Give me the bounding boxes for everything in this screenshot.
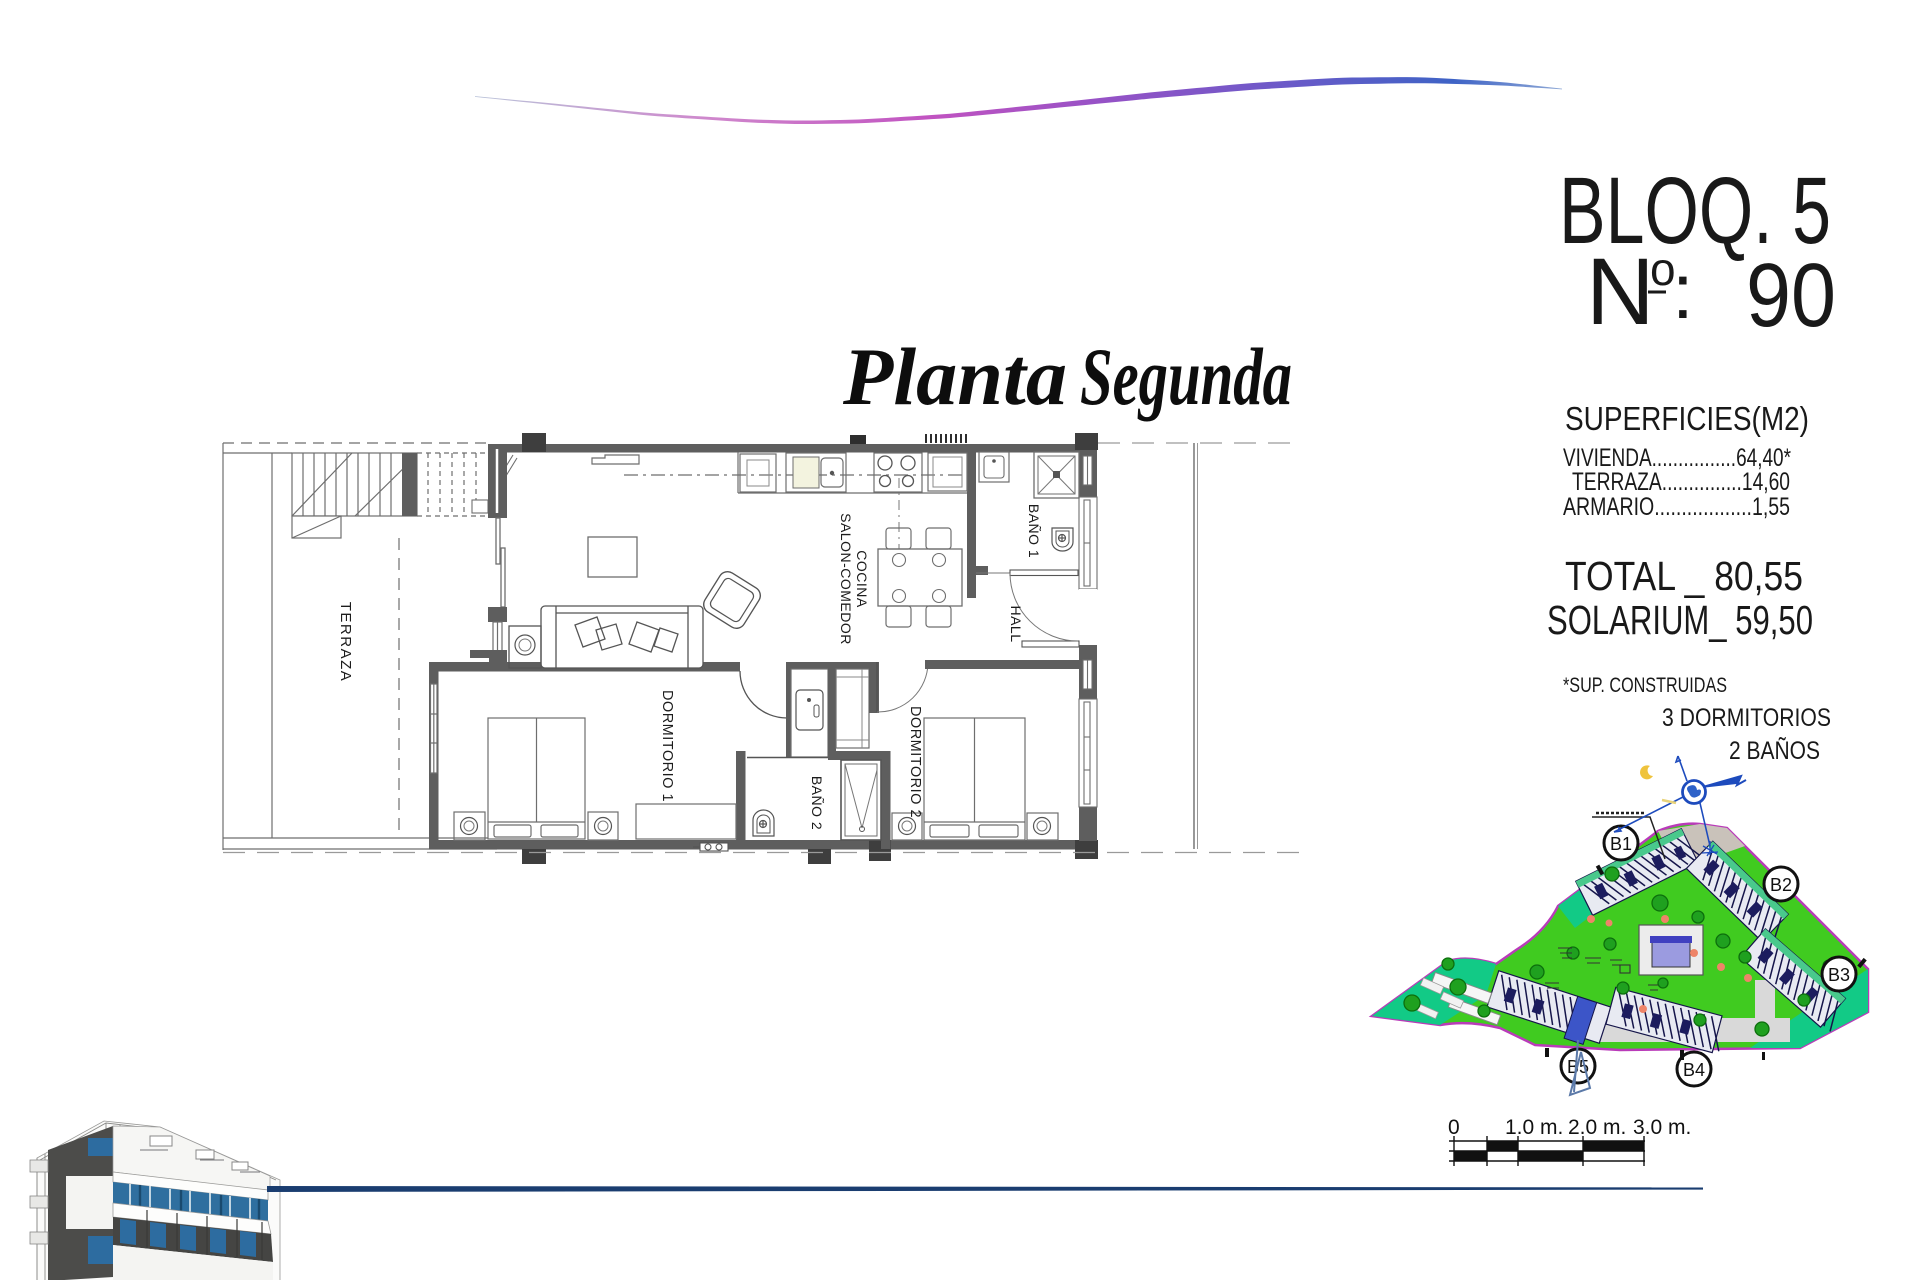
svg-text:B2: B2 — [1770, 875, 1792, 895]
svg-text:B3: B3 — [1828, 965, 1850, 985]
svg-text:SUPERFICIES(M2): SUPERFICIES(M2) — [1565, 400, 1809, 437]
svg-text:SOLARIUM_ 59,50: SOLARIUM_ 59,50 — [1547, 597, 1813, 643]
svg-text:0: 0 — [1448, 1116, 1460, 1139]
svg-text:B4: B4 — [1683, 1060, 1705, 1080]
svg-text:DORMITORIO 1: DORMITORIO 1 — [659, 690, 675, 802]
svg-text:BAÑO 1: BAÑO 1 — [1026, 504, 1042, 558]
svg-text:BAÑO 2: BAÑO 2 — [809, 776, 825, 830]
svg-text:N: N — [1586, 239, 1655, 345]
svg-text:TOTAL _ 80,55: TOTAL _ 80,55 — [1565, 553, 1803, 599]
svg-text:2.0 m.: 2.0 m. — [1568, 1116, 1626, 1139]
svg-text:1.0 m.: 1.0 m. — [1505, 1116, 1563, 1139]
svg-text:COCINA: COCINA — [854, 550, 870, 608]
svg-text:Planta: Planta — [842, 331, 1067, 422]
svg-text:SALON-COMEDOR: SALON-COMEDOR — [838, 513, 854, 645]
svg-text:2 BAÑOS: 2 BAÑOS — [1729, 736, 1820, 765]
svg-text:DORMITORIO 2: DORMITORIO 2 — [907, 706, 923, 818]
svg-text:ARMARIO..................1,55: ARMARIO..................1,55 — [1563, 493, 1790, 521]
svg-text:90: 90 — [1746, 246, 1836, 346]
svg-text:3.0 m.: 3.0 m. — [1633, 1116, 1691, 1139]
svg-text:HALL: HALL — [1008, 605, 1024, 642]
svg-text:*SUP. CONSTRUIDAS: *SUP. CONSTRUIDAS — [1563, 674, 1727, 697]
svg-text:3 DORMITORIOS: 3 DORMITORIOS — [1662, 704, 1831, 732]
svg-text::: : — [1672, 247, 1694, 335]
svg-text:TERRAZA: TERRAZA — [337, 602, 354, 683]
svg-text:B1: B1 — [1610, 834, 1632, 854]
svg-text:Segunda: Segunda — [1080, 331, 1292, 422]
svg-text:TERRAZA...............14,60: TERRAZA...............14,60 — [1572, 468, 1790, 496]
